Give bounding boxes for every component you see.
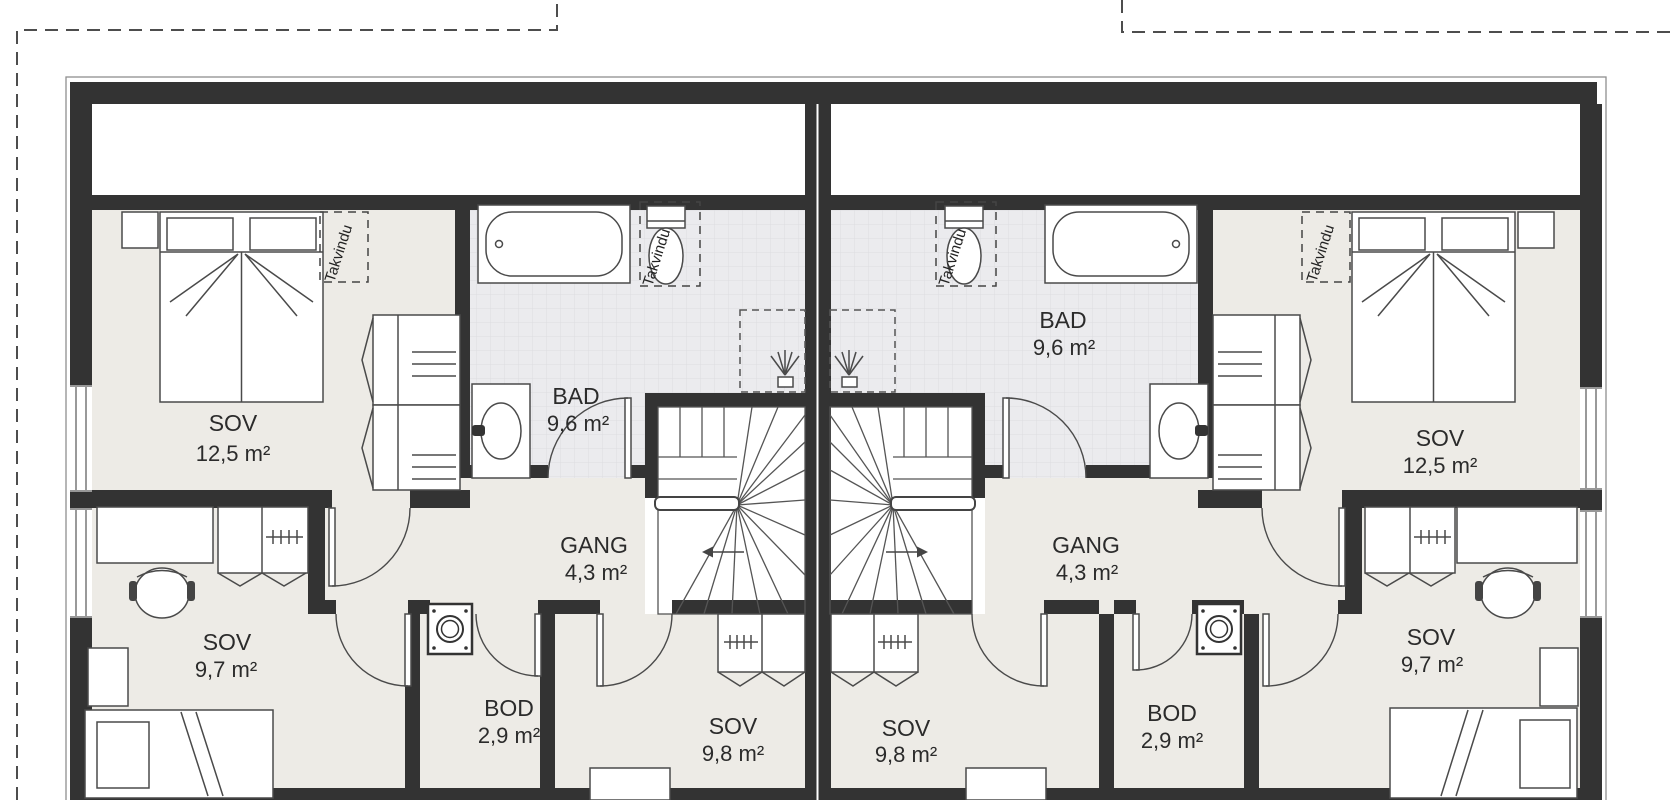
party-wall bbox=[805, 100, 831, 800]
room-area-bod-right: 2,9 m² bbox=[1141, 728, 1203, 753]
room-label-sov125-left: SOV bbox=[209, 410, 258, 436]
room-area-bad-left: 9,6 m² bbox=[547, 411, 609, 436]
room-label-sov97-left: SOV bbox=[203, 629, 252, 655]
double-bed bbox=[1352, 212, 1515, 402]
room-label-gang-left: GANG bbox=[560, 532, 628, 558]
stair-handrail bbox=[891, 497, 975, 510]
room-area-sov97-right: 9,7 m² bbox=[1401, 652, 1463, 677]
room-area-sov125-left: 12,5 m² bbox=[196, 441, 271, 466]
floor-plan-svg: SOV 12,5 m² BAD 9,6 m² GANG 4,3 m² SOV 9… bbox=[0, 0, 1670, 800]
bathtub-icon bbox=[478, 205, 630, 283]
floor-plan: SOV 12,5 m² BAD 9,6 m² GANG 4,3 m² SOV 9… bbox=[0, 0, 1670, 800]
room-label-bod-left: BOD bbox=[484, 695, 534, 721]
room-area-bod-left: 2,9 m² bbox=[478, 723, 540, 748]
exterior-wall-bottom bbox=[70, 788, 1597, 800]
room-area-sov97-left: 9,7 m² bbox=[195, 657, 257, 682]
nightstand bbox=[122, 212, 158, 248]
sink-icon bbox=[1150, 384, 1208, 478]
nightstand bbox=[1540, 648, 1578, 706]
room-area-gang-right: 4,3 m² bbox=[1056, 560, 1118, 585]
desk bbox=[1457, 507, 1577, 563]
bed-headboard bbox=[590, 768, 670, 800]
room-area-sov98-right: 9,8 m² bbox=[875, 742, 937, 767]
room-label-sov98-left: SOV bbox=[709, 713, 758, 739]
exterior-wall-top bbox=[70, 82, 1597, 104]
desk bbox=[97, 507, 213, 563]
single-bed bbox=[1390, 708, 1577, 798]
room-label-bad-right: BAD bbox=[1039, 307, 1086, 333]
window bbox=[1580, 510, 1602, 618]
stair-handrail bbox=[655, 497, 739, 510]
room-label-sov97-right: SOV bbox=[1407, 624, 1456, 650]
room-label-sov98-right: SOV bbox=[882, 715, 931, 741]
window bbox=[1580, 387, 1602, 490]
room-label-bod-right: BOD bbox=[1147, 700, 1197, 726]
bed-headboard bbox=[966, 768, 1046, 800]
room-area-sov125-right: 12,5 m² bbox=[1403, 453, 1478, 478]
window bbox=[70, 508, 92, 618]
room-label-gang-right: GANG bbox=[1052, 532, 1120, 558]
nightstand bbox=[1518, 212, 1554, 248]
room-label-bad-left: BAD bbox=[552, 383, 599, 409]
sink-icon bbox=[472, 384, 530, 478]
room-area-gang-left: 4,3 m² bbox=[565, 560, 627, 585]
chimney-icon bbox=[428, 604, 472, 654]
single-bed bbox=[85, 710, 273, 798]
wardrobe bbox=[362, 315, 460, 490]
room-area-sov98-left: 9,8 m² bbox=[702, 741, 764, 766]
double-bed bbox=[160, 212, 323, 402]
room-area-bad-right: 9,6 m² bbox=[1033, 335, 1095, 360]
bathtub-icon bbox=[1045, 205, 1197, 283]
wardrobe bbox=[1213, 315, 1311, 490]
nightstand bbox=[88, 648, 128, 706]
window bbox=[70, 385, 92, 492]
room-label-sov125-right: SOV bbox=[1416, 425, 1465, 451]
chimney-icon bbox=[1197, 604, 1241, 654]
